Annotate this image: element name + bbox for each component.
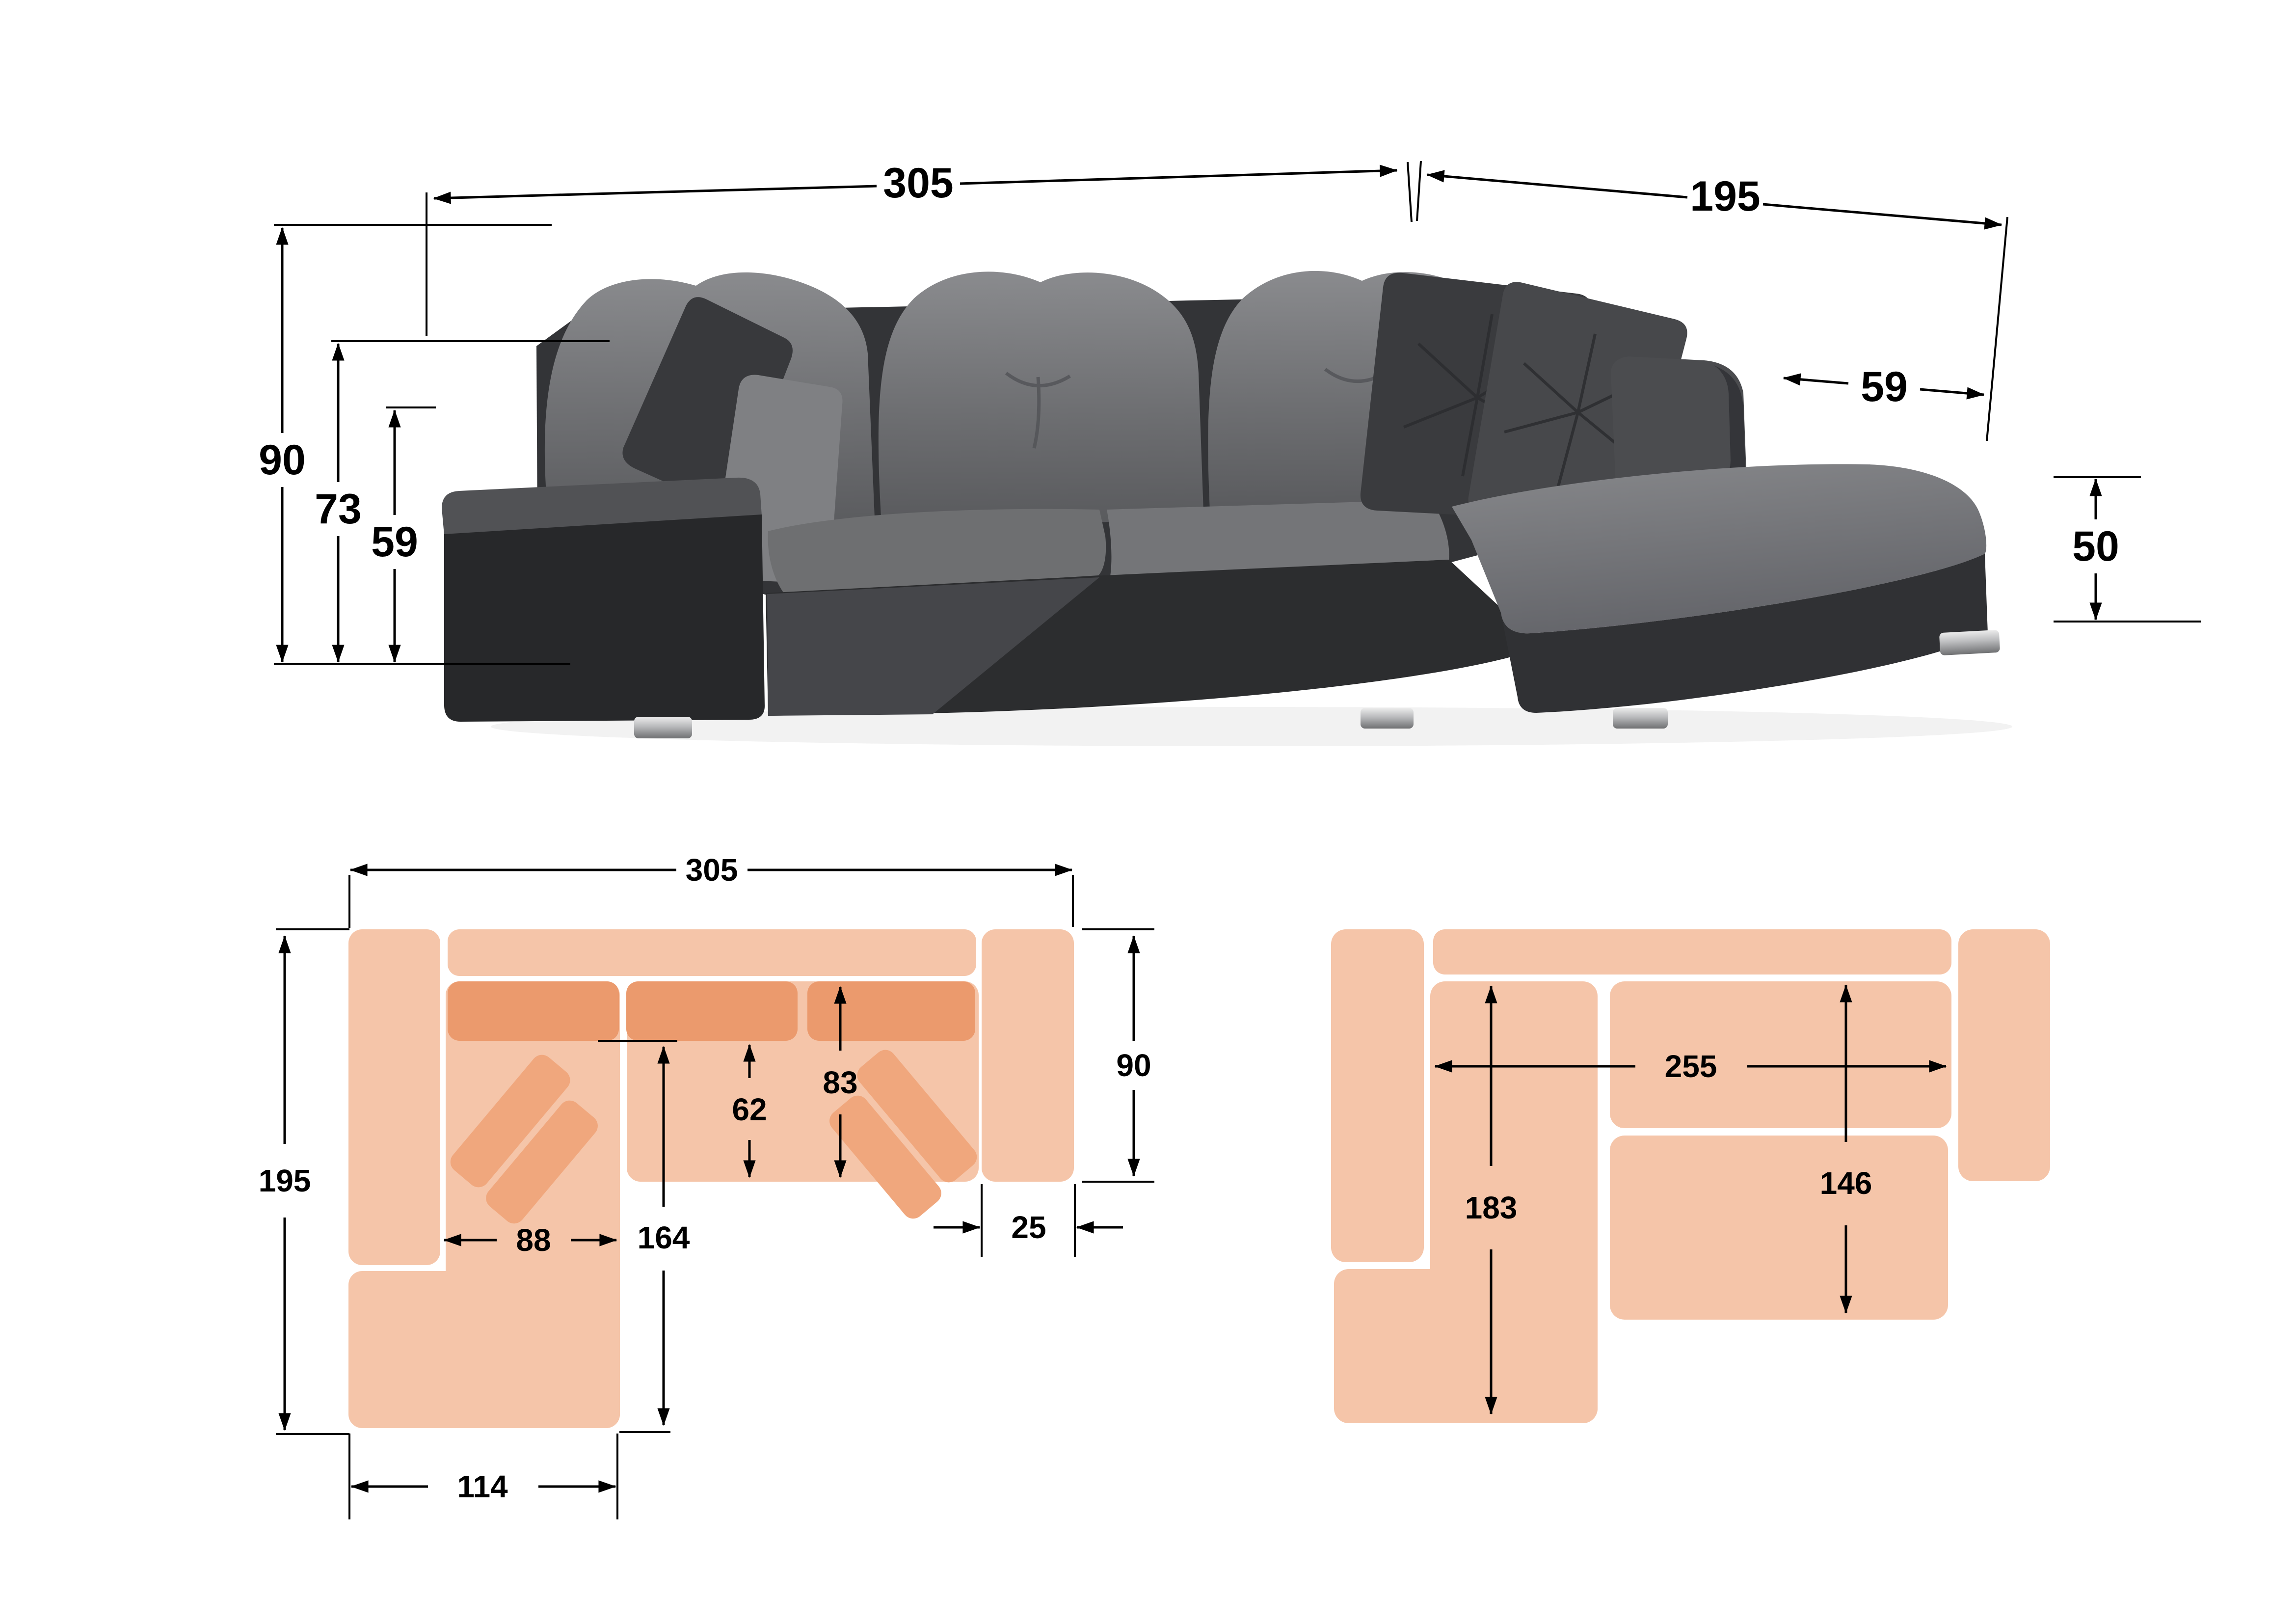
dim-seat-height: 59 <box>371 407 436 662</box>
dim-label-seat-height: 59 <box>371 518 418 566</box>
corner-ticks <box>1408 161 1421 222</box>
plan-back-cushion-3 <box>807 981 975 1041</box>
foot-1 <box>634 717 692 738</box>
plan-back-cushion-1 <box>448 981 619 1041</box>
dim-plan-depth: 195 <box>259 898 349 1465</box>
dim-label-bed-width: 255 <box>1665 1049 1717 1084</box>
dim-label-armrest-width: 25 <box>1011 1210 1046 1245</box>
armrest-left-front <box>444 514 765 722</box>
bed-armrest-right <box>1958 929 2050 1181</box>
dim-label-backrest-height: 73 <box>315 486 362 533</box>
top-view-plan: 305 195 90 88 164 <box>259 852 1154 1519</box>
dim-label-chaise-length: 164 <box>638 1220 690 1255</box>
dim-label-bed-width-right: 146 <box>1820 1165 1872 1201</box>
bed-armrest-left <box>1331 929 1424 1262</box>
plan-backrest <box>448 929 976 976</box>
dim-label-plan-width: 305 <box>686 852 738 888</box>
dim-line <box>1920 389 1984 395</box>
ext-line <box>1987 217 2007 441</box>
plan-chaise-foot <box>348 1271 620 1428</box>
foot-2 <box>1361 708 1414 729</box>
dim-chaise-height: 50 <box>2054 477 2201 622</box>
dim-chaise-width: 114 <box>349 1434 617 1519</box>
dim-armrest-depth: 59 <box>1784 363 1984 410</box>
dim-label-depth: 195 <box>1690 173 1761 220</box>
dim-line <box>1763 204 2002 225</box>
dim-label-chaise-inner: 88 <box>516 1222 551 1258</box>
dim-line <box>960 170 1397 184</box>
dim-line <box>434 186 877 198</box>
dim-label-seat-depth: 62 <box>732 1092 767 1127</box>
dim-line <box>1427 175 1687 197</box>
dim-plan-right-depth: 90 <box>1082 929 1154 1182</box>
dim-line <box>1784 378 1848 383</box>
dim-label-chaise-height: 50 <box>2072 523 2119 570</box>
dim-label-chaise-width: 114 <box>457 1469 508 1504</box>
dim-armrest-width: 25 <box>934 1184 1123 1257</box>
bed-mattress-2 <box>1610 1136 1948 1320</box>
foot-3 <box>1613 708 1668 729</box>
dim-label-bed-length: 183 <box>1465 1190 1518 1225</box>
dim-label-width: 305 <box>883 160 954 207</box>
bed-view-plan: 255 183 146 <box>1331 929 2050 1423</box>
dim-label-plan-depth: 195 <box>259 1163 311 1198</box>
foot-4 <box>1939 630 2000 655</box>
bed-left-foot <box>1334 1269 1598 1423</box>
dim-label-height: 90 <box>259 436 306 484</box>
plan-back-cushion-2 <box>626 981 798 1041</box>
dim-label-seat-depth-back: 83 <box>823 1065 857 1100</box>
plan-armrest-left <box>348 929 440 1265</box>
dim-label-right-depth: 90 <box>1116 1048 1151 1083</box>
dim-plan-width: 305 <box>349 852 1073 927</box>
plan-armrest-right <box>982 929 1074 1182</box>
bed-backrest <box>1433 929 1951 974</box>
diagram-canvas: 305 195 59 50 90 <box>0 0 2296 1624</box>
bed-mattress-1 <box>1610 981 1951 1128</box>
sofa-photo <box>442 271 2012 746</box>
dim-label-armrest-depth: 59 <box>1861 363 1908 410</box>
back-cushion-2 <box>879 271 1203 524</box>
page: { "title": "Corner sofa with chaise — di… <box>0 0 2296 1624</box>
